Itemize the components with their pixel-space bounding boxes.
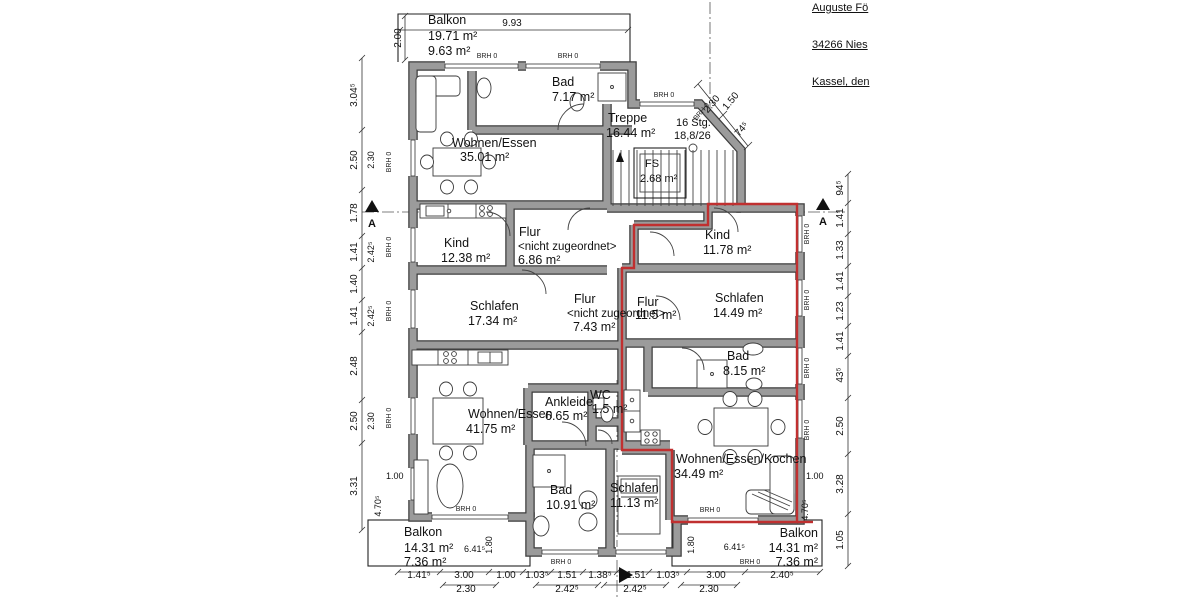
room-flur-left-tag: <nicht zugeordnet> [518, 241, 617, 253]
room-wek-name: Wohnen/Essen/Kochen [676, 452, 806, 466]
room-balkon-top-name: Balkon [428, 13, 466, 27]
brh-label: BRH 0 [804, 420, 811, 441]
room-bad-bottom-name: Bad [550, 483, 572, 497]
brh-label: BRH 0 [804, 224, 811, 245]
toilet-bad-bottom [533, 516, 549, 536]
dining-table-bottom-left [433, 398, 483, 444]
room-flur-left-area: 6.86 m² [518, 253, 560, 267]
room-balkon-br-area2: 7.36 m² [776, 555, 818, 569]
dim-bottom2-3: 2.30 [699, 584, 719, 595]
room-wohnen-bottom-area: 41.75 m² [466, 422, 515, 436]
room-flur-right-area: 11.5 m² [635, 308, 676, 322]
dim-right-6: 43⁵ [835, 367, 846, 382]
room-balkon-bl-name: Balkon [404, 525, 442, 539]
brh-label: BRH 0 [558, 53, 579, 60]
room-flur-left-name: Flur [519, 225, 541, 239]
dim-left-inner-1: 2.42⁵ [366, 241, 376, 263]
brh-label: BRH 0 [654, 92, 675, 99]
brh-label: BRH 0 [551, 559, 572, 566]
dim-bottom1-9: 2.40⁵ [770, 570, 794, 581]
room-kind-left-name: Kind [444, 236, 469, 250]
dim-left-5: 1.41 [349, 306, 360, 326]
dining-table-wek [714, 408, 768, 446]
room-schlafen-left-name: Schlafen [470, 299, 519, 313]
room-bad-right-name: Bad [727, 349, 749, 363]
brh-label: BRH 0 [477, 53, 498, 60]
rug-oval [437, 464, 463, 508]
room-wek-area: 34.49 m² [674, 467, 723, 481]
dim-left-inner-3: 2.30 [366, 412, 376, 430]
floorplan-svg: 9.93 2.00 3.04⁵ 2.50 1.78 1.41 1.40 1.41… [0, 0, 1200, 600]
room-balkon-bl-area2: 7.36 m² [404, 555, 446, 569]
brh-label: BRH 0 [740, 559, 761, 566]
dim-left-3: 1.41 [349, 242, 360, 262]
brh-label: BRH 0 [804, 358, 811, 379]
floorplan-sheet: Auguste Fö 34266 Nies Kassel, den [0, 0, 1200, 600]
room-kind-right-area: 11.78 m² [703, 243, 751, 257]
room-bad-top-name: Bad [552, 75, 574, 89]
dim-balcony-right-depth: 4.70⁵ [800, 499, 810, 521]
brh-label: BRH 0 [386, 237, 393, 258]
dim-left-1: 2.50 [349, 150, 360, 170]
room-treppe-area: 16.44 m² [606, 126, 655, 140]
room-balkon-top-area2: 9.63 m² [428, 44, 470, 58]
room-kind-left-area: 12.38 m² [441, 251, 490, 265]
room-wc-area: 1.5 m² [592, 402, 627, 416]
room-bad-bottom-area: 10.91 m² [546, 498, 595, 512]
dim-balcony-left-width: 6.41⁵ [464, 544, 486, 554]
section-marker-a-right-label: A [819, 216, 827, 228]
section-marker-a-right-icon [816, 198, 830, 210]
room-balkon-bl-area: 14.31 m² [404, 541, 453, 555]
room-flur-mid-area: 7.43 m² [573, 320, 615, 334]
dim-left-4: 1.40 [349, 274, 360, 294]
dim-bottom1-0: 1.41⁵ [407, 570, 431, 581]
room-schlafen-right-area: 14.49 m² [713, 306, 762, 320]
dim-right-7: 2.50 [835, 416, 846, 436]
room-ankleide-name: Ankleide [545, 395, 593, 409]
room-balkon-br-area: 14.31 m² [769, 541, 818, 555]
room-kind-right-name: Kind [705, 228, 730, 242]
brh-label: BRH 0 [386, 301, 393, 322]
dim-left-8: 3.31 [349, 476, 360, 496]
room-ankleide-area: 6.65 m² [545, 409, 587, 423]
brh-label: BRH 0 [456, 506, 477, 513]
room-balkon-top-area: 19.71 m² [428, 29, 477, 43]
dim-left-2: 1.78 [349, 203, 360, 223]
dim-top-depth: 2.00 [393, 28, 404, 48]
room-schlafen-bottom-name: Schlafen [610, 481, 659, 495]
room-fs-area: 2.68 m² [640, 173, 678, 185]
room-wohnen-bottom-name: Wohnen/Essen [468, 407, 553, 421]
room-wohnen-top-area: 35.01 m² [460, 150, 509, 164]
dim-right-4: 1.23 [835, 301, 846, 321]
room-flur-mid-name: Flur [574, 292, 596, 306]
dim-bottom1-4: 1.51 [557, 570, 577, 581]
dim-diag-c: 74⁵ [733, 120, 751, 139]
dim-balcony-left-side: 1.00 [386, 471, 404, 481]
stair-direction-arrow [616, 152, 624, 162]
sink-bad-top [477, 78, 491, 98]
dim-balcony-left-depth: 4.70⁵ [373, 495, 383, 517]
room-flur-right-name: Flur [637, 295, 659, 309]
brh-label: BRH 0 [386, 152, 393, 173]
dim-left-7: 2.50 [349, 411, 360, 431]
room-wc-name: WC [590, 388, 611, 402]
dim-balcony-right-width: 6.41⁵ [724, 542, 746, 552]
toilet-bad-right [746, 378, 762, 390]
room-wohnen-top-name: Wohnen/Essen [452, 136, 537, 150]
dim-bottom1-2: 1.00 [496, 570, 516, 581]
dim-right-1: 1.41 [835, 208, 846, 228]
dim-bottom1-8: 3.00 [706, 570, 726, 581]
dim-left-6: 2.48 [349, 356, 360, 376]
dim-balcony-right-depth-inner: 1.80 [686, 536, 696, 554]
dim-bottom1-5: 1.38⁵ [588, 570, 612, 581]
dim-diag-a: 1.50 [721, 90, 742, 112]
room-schlafen-left-area: 17.34 m² [468, 314, 517, 328]
wardrobe [414, 460, 428, 514]
room-schlafen-bottom-area: 11.13 m² [610, 496, 658, 510]
room-treppe-name: Treppe [608, 111, 647, 125]
dim-right-3: 1.41 [835, 271, 846, 291]
dim-bottom2-2: 2.42⁵ [623, 584, 647, 595]
room-bad-right-area: 8.15 m² [723, 364, 765, 378]
brh-label: BRH 0 [804, 290, 811, 311]
dim-bottom2-1: 2.42⁵ [555, 584, 579, 595]
dim-bottom1-1: 3.00 [454, 570, 474, 581]
dim-left-inner-0: 2.30 [366, 151, 376, 169]
room-fs-name: FS [645, 158, 659, 170]
brh-label: BRH 0 [700, 507, 721, 514]
dim-left-inner-2: 2.42⁵ [366, 305, 376, 327]
stair-steps-line2: 18,8/26 [674, 130, 711, 142]
dim-bottom1-7: 1.03⁵ [656, 570, 680, 581]
dim-left-0: 3.04⁵ [349, 83, 360, 107]
dim-right-2: 1.33 [835, 240, 846, 260]
dim-bottom2-0: 2.30 [456, 584, 476, 595]
dim-right-9: 1.05 [835, 530, 846, 550]
section-marker-a-left-label: A [368, 218, 376, 230]
dim-bottom1-3: 1.03⁵ [525, 570, 549, 581]
dim-right-8: 3.28 [835, 474, 846, 494]
brh-label: BRH 0 [386, 408, 393, 429]
room-balkon-br-name: Balkon [780, 526, 818, 540]
dim-top-width: 9.93 [502, 18, 522, 29]
dim-right-0: 94⁵ [835, 180, 846, 195]
section-marker-a-left-icon [365, 200, 379, 212]
room-bad-top-area: 7.17 m² [552, 90, 594, 104]
room-schlafen-right-name: Schlafen [715, 291, 764, 305]
dim-balcony-left-depth-inner: 1.80 [484, 536, 494, 554]
dim-right-5: 1.41 [835, 331, 846, 351]
dim-balcony-right-side: 1.00 [806, 471, 824, 481]
